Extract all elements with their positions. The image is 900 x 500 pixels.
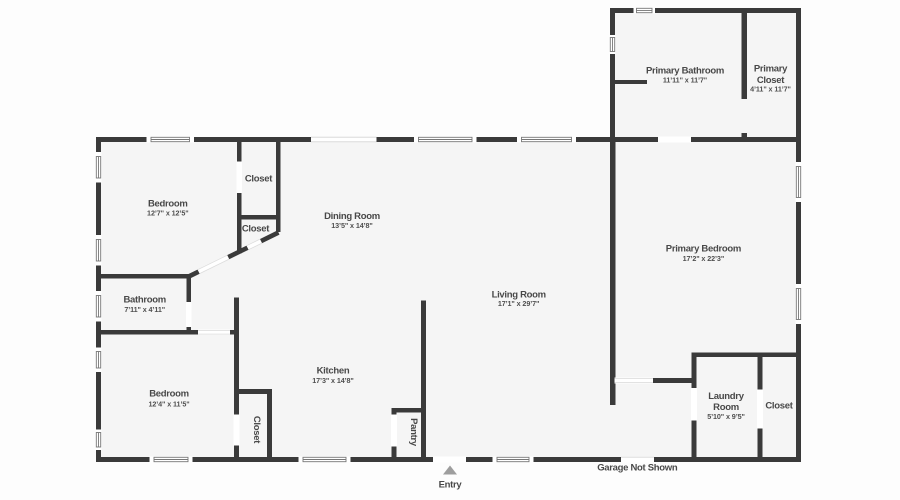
svg-text:Bathroom: Bathroom [123, 295, 165, 306]
svg-text:Pantry: Pantry [408, 418, 419, 447]
svg-text:12’7" x 12’5": 12’7" x 12’5" [147, 208, 189, 217]
svg-text:Primary: Primary [754, 64, 788, 75]
svg-text:Garage Not Shown: Garage Not Shown [597, 462, 678, 473]
svg-text:17’2" x 22’3": 17’2" x 22’3" [683, 254, 725, 263]
svg-text:5’10" x 9’5": 5’10" x 9’5" [707, 412, 745, 421]
svg-text:17’3" x 14’8": 17’3" x 14’8" [312, 376, 354, 385]
svg-text:Closet: Closet [242, 223, 270, 234]
svg-text:Laundry: Laundry [708, 391, 744, 402]
svg-text:12’4" x 11’5": 12’4" x 11’5" [148, 399, 189, 408]
svg-text:Closet: Closet [245, 174, 273, 185]
svg-text:Closet: Closet [251, 416, 262, 444]
svg-text:13’5" x 14’8": 13’5" x 14’8" [331, 221, 373, 230]
svg-text:17’1" x 29’7": 17’1" x 29’7" [498, 299, 540, 308]
svg-text:Entry: Entry [439, 480, 463, 491]
svg-text:Bedroom: Bedroom [149, 389, 189, 400]
svg-text:4’11" x 11’7": 4’11" x 11’7" [750, 84, 791, 93]
svg-text:Kitchen: Kitchen [317, 365, 350, 376]
svg-text:7’11" x 4’11": 7’11" x 4’11" [124, 305, 165, 314]
svg-text:Primary Bedroom: Primary Bedroom [666, 244, 741, 255]
svg-text:11’11" x 11’7": 11’11" x 11’7" [663, 75, 707, 84]
svg-text:Closet: Closet [765, 401, 793, 412]
svg-text:Dining Room: Dining Room [324, 211, 380, 222]
